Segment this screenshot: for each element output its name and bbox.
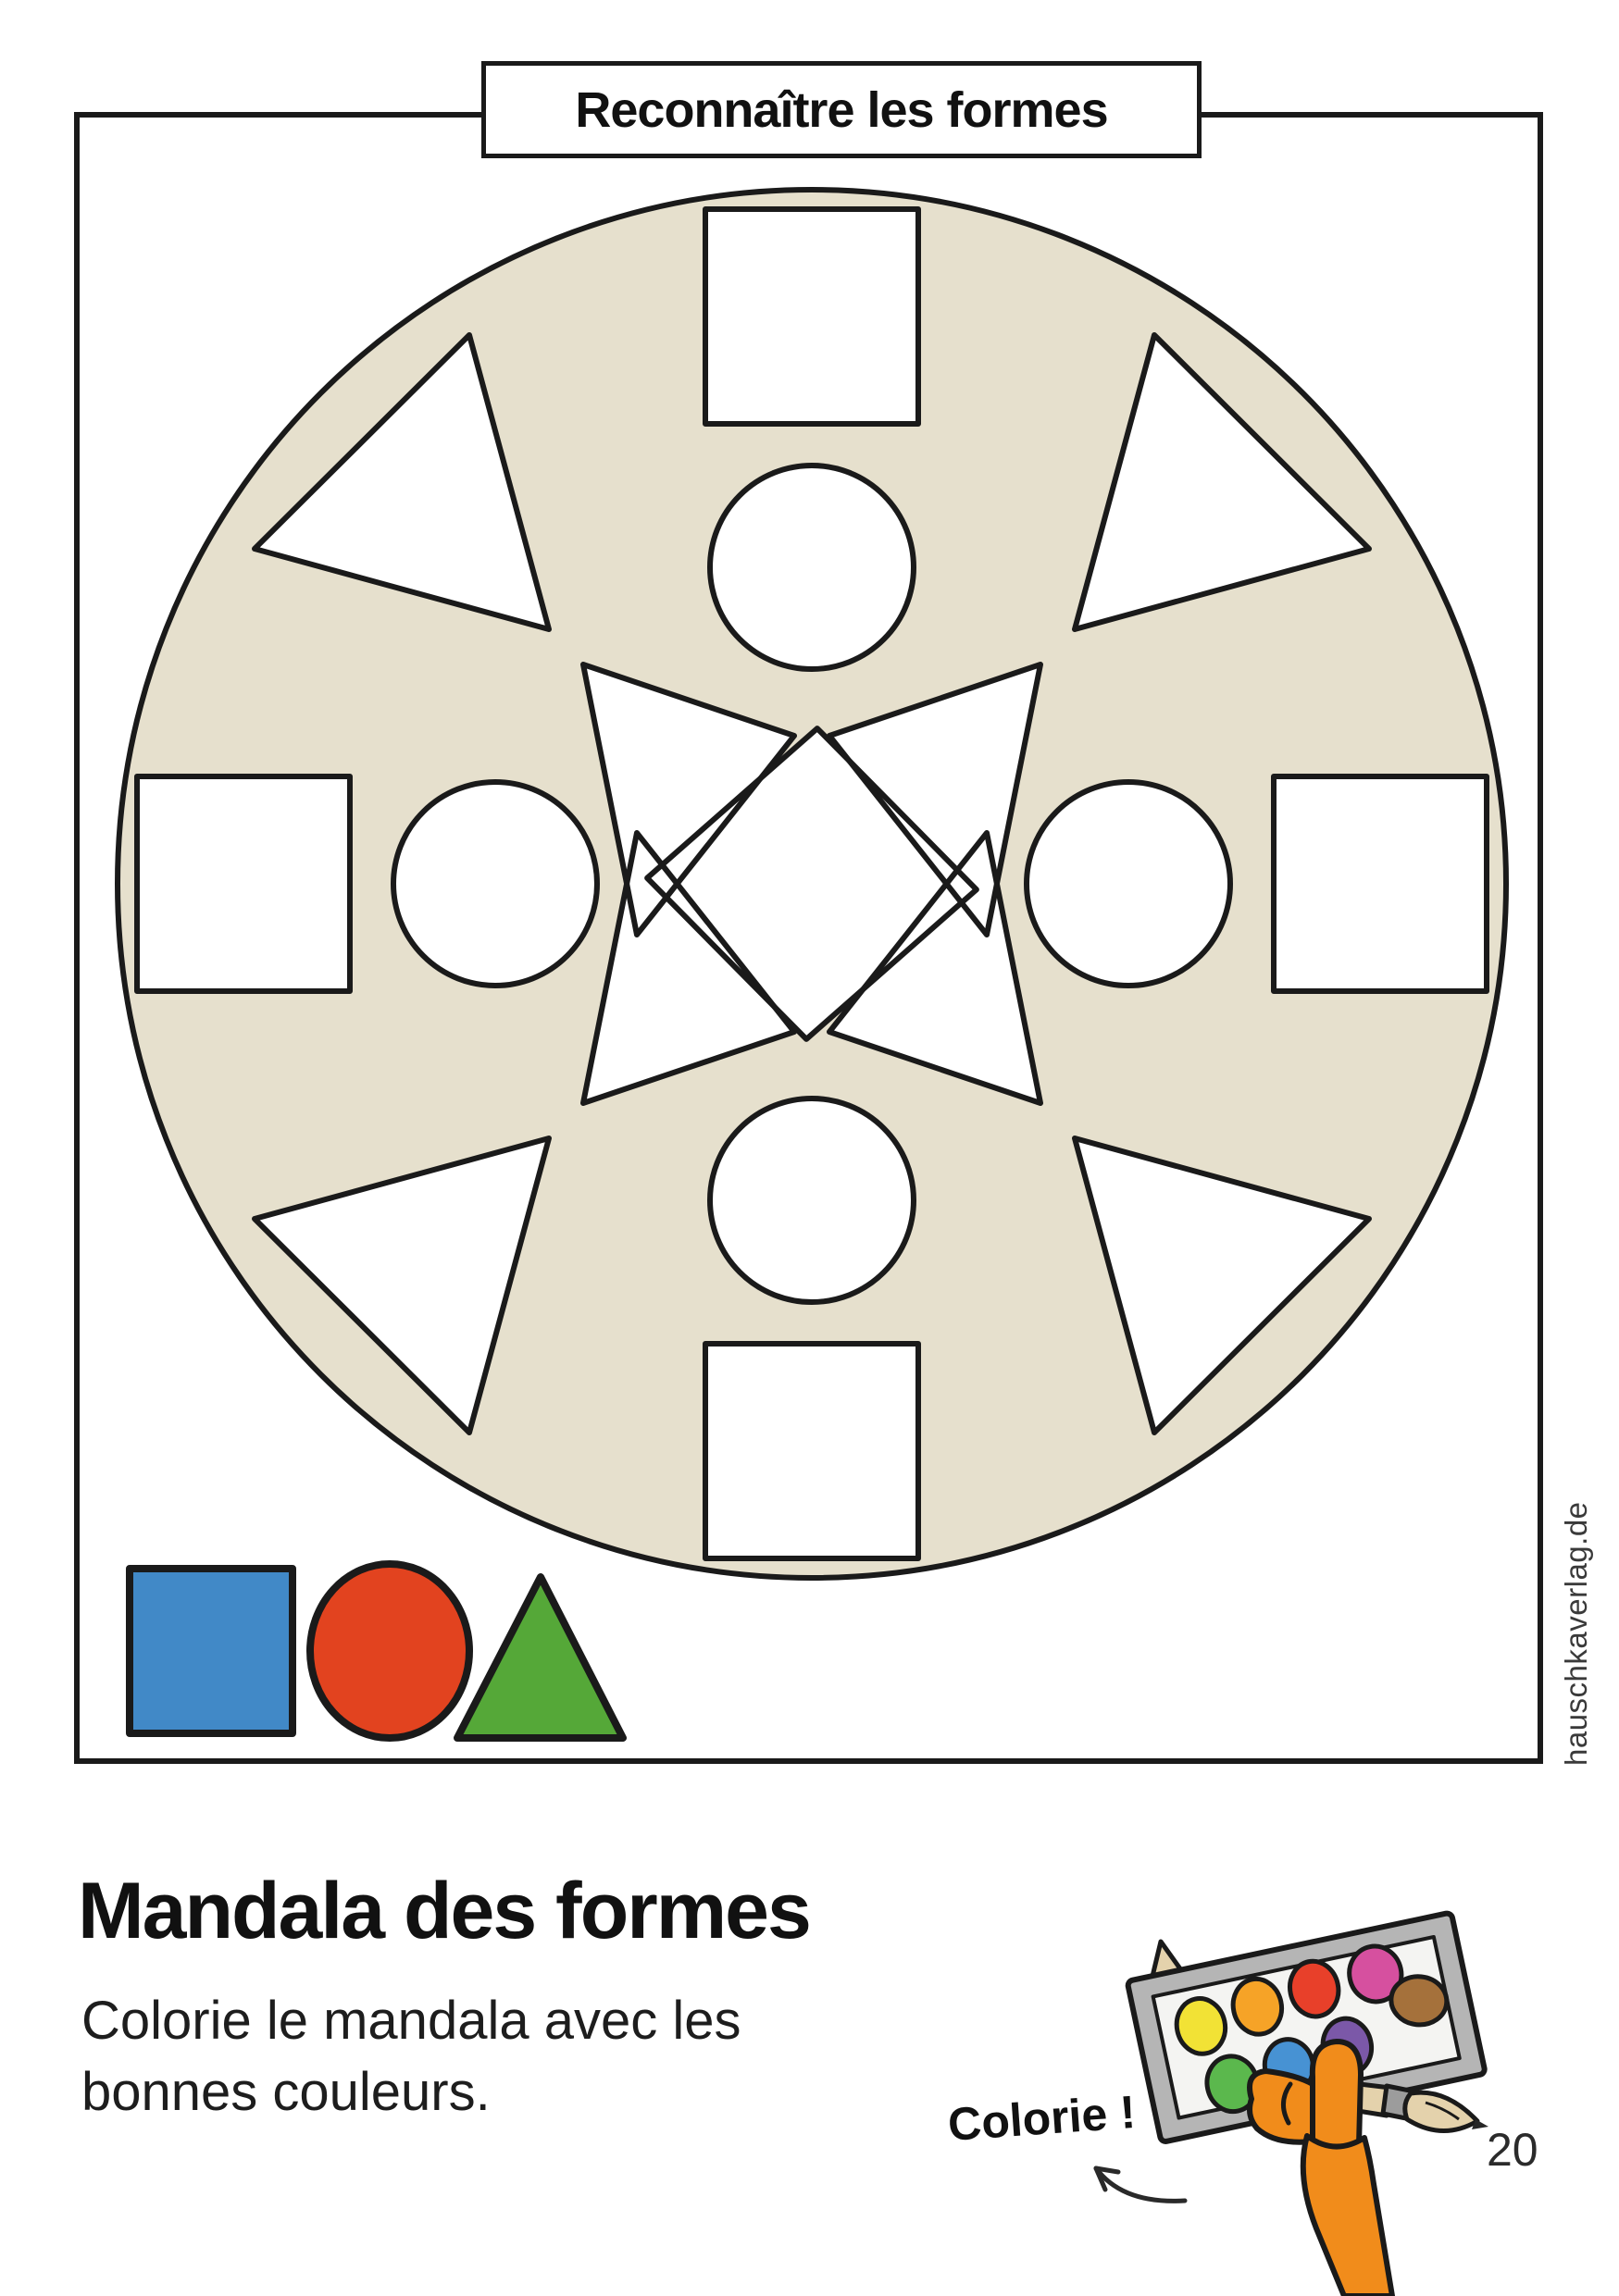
page-title: Reconnaître les formes	[575, 81, 1107, 139]
palette-frame	[1127, 1912, 1486, 2142]
paint-palette	[1127, 1912, 1486, 2142]
page-title-box: Reconnaître les formes	[481, 61, 1202, 158]
paint-blobs	[1168, 1932, 1466, 2120]
instruction-text: Colorie le mandala avec les bonnes coule…	[81, 1986, 741, 2128]
paint-yellow	[1172, 1994, 1230, 2059]
brush-bristles	[1405, 2092, 1477, 2130]
cartoon-hand	[1250, 2042, 1392, 2296]
paint-red	[1285, 1956, 1343, 2021]
lesson-heading: Mandala des formes	[78, 1871, 810, 1951]
instruction-line-1: Colorie le mandala avec les	[81, 1986, 741, 2057]
page-number: 20	[1487, 2123, 1538, 2177]
finger-curl-line	[1283, 2084, 1290, 2123]
callout-arrow	[1096, 2168, 1185, 2201]
workbook-page: Reconnaître les formes	[0, 0, 1619, 2296]
arm	[1303, 2136, 1392, 2296]
paint-green	[1202, 2052, 1262, 2116]
brush-handle	[1340, 2082, 1390, 2116]
publisher-watermark: hauschkaverlag.de	[1559, 1501, 1594, 1766]
brush-handle-end	[1150, 1942, 1189, 1988]
paint-brown	[1389, 1974, 1449, 2028]
paint-orange	[1228, 1975, 1287, 2040]
palette-inner	[1153, 1937, 1460, 2118]
brush-ferrule	[1383, 2086, 1414, 2119]
paint-magenta	[1344, 1942, 1406, 2006]
paint-purple	[1318, 2014, 1376, 2079]
page-frame	[74, 112, 1543, 1764]
hand-thumb	[1313, 2042, 1361, 2151]
instruction-line-2: bonnes couleurs.	[81, 2057, 741, 2128]
hand-palette-illustration	[1127, 1912, 1488, 2296]
paint-blue	[1260, 2035, 1318, 2098]
colorie-callout: Colorie !	[946, 2085, 1137, 2152]
hand-palm	[1250, 2071, 1313, 2142]
brush-hair-line	[1426, 2103, 1459, 2119]
